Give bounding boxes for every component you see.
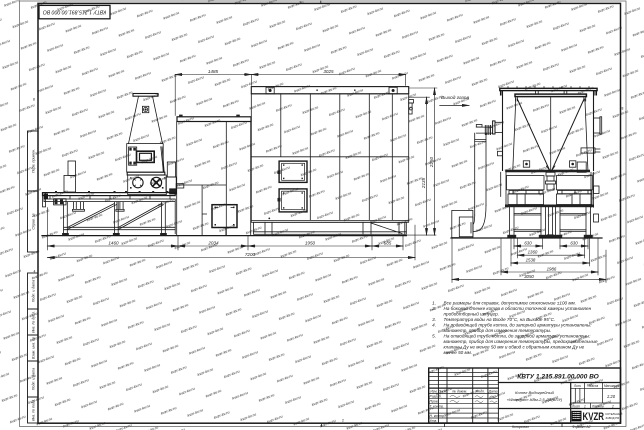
svg-text:манометр, прибор для измерения: манометр, прибор для измерения температу… — [444, 328, 552, 333]
svg-text:Перв. примен.: Перв. примен. — [32, 149, 36, 173]
svg-text:3050: 3050 — [524, 274, 534, 279]
svg-text:КОТЕЛЬНЫЙ: КОТЕЛЬНЫЙ — [606, 412, 623, 416]
svg-text:Копировал: Копировал — [512, 425, 529, 429]
svg-text:Разраб.: Разраб. — [430, 394, 442, 398]
svg-text:2135: 2135 — [421, 177, 426, 189]
svg-text:1460: 1460 — [108, 240, 119, 245]
svg-text:5.: 5. — [432, 334, 436, 339]
svg-text:Листов: Листов — [591, 404, 604, 408]
svg-text:На боковой стенке котла в обла: На боковой стенке котла в области топочн… — [444, 305, 592, 311]
svg-text:На подводящей трубе котла, до: На подводящей трубе котла, до запорной а… — [444, 322, 593, 328]
svg-text:KVZR: KVZR — [583, 411, 605, 423]
svg-text:8: 8 — [622, 107, 624, 111]
svg-text:1950: 1950 — [305, 240, 316, 245]
svg-text:2034: 2034 — [207, 240, 219, 245]
svg-text:клапаны Ду не менее 50 мм и об: клапаны Ду не менее 50 мм и обвод с обра… — [444, 345, 585, 350]
svg-text:ЗАВОД РФ: ЗАВОД РФ — [606, 416, 620, 420]
svg-text:1: 1 — [584, 404, 586, 408]
svg-text:Котел Водогрейный: Котел Водогрейный — [515, 390, 554, 395]
svg-text:Подп. и дата: Подп. и дата — [32, 368, 36, 391]
svg-text:Инв. № подл.: Инв. № подл. — [32, 399, 36, 421]
svg-text:1485: 1485 — [208, 69, 219, 74]
svg-text:КВТУ 1.215.891.00.000 ВО: КВТУ 1.215.891.00.000 ВО — [517, 374, 599, 381]
svg-text:КВТУ 1.215.891.00.000 ВО: КВТУ 1.215.891.00.000 ВО — [43, 8, 106, 14]
svg-text:Утв.: Утв. — [430, 419, 438, 423]
svg-text:Выход газов: Выход газов — [441, 95, 469, 101]
svg-text:1360: 1360 — [528, 250, 538, 255]
svg-text:4.: 4. — [432, 323, 436, 328]
svg-text:2: 2 — [342, 419, 344, 423]
svg-text:Подп. и дата: Подп. и дата — [32, 280, 36, 303]
svg-text:Изм: Изм — [430, 389, 437, 393]
svg-text:Температура воды на Входе 70°С: Температура воды на Входе 70°С, на Выход… — [444, 317, 556, 322]
svg-text:1986: 1986 — [547, 266, 557, 271]
svg-text:пробоотборный штуцер.: пробоотборный штуцер. — [444, 311, 499, 317]
svg-text:1.: 1. — [432, 301, 436, 306]
svg-text:Взам. инв. №: Взам. инв. № — [32, 337, 36, 359]
svg-text:Т. контр.: Т. контр. — [430, 404, 445, 408]
svg-text:2250: 2250 — [429, 156, 434, 168]
svg-text:Лист: Лист — [571, 404, 581, 408]
svg-text:3025: 3025 — [323, 69, 334, 74]
svg-text:Масса: Масса — [589, 384, 599, 388]
svg-text:Пров.: Пров. — [430, 399, 439, 403]
svg-text:630: 630 — [570, 240, 578, 245]
svg-text:Н. контр.: Н. контр. — [430, 414, 445, 418]
svg-text:Инв. № дубл.: Инв. № дубл. — [32, 311, 36, 333]
svg-text:7200: 7200 — [245, 252, 256, 257]
svg-text:3.: 3. — [432, 317, 436, 322]
svg-text:Все размеры для справок, допус: Все размеры для справок, допустимое откл… — [444, 301, 576, 306]
svg-text:Формат А2: Формат А2 — [572, 425, 591, 429]
svg-text:2: 2 — [611, 404, 614, 408]
svg-text:2: 2 — [299, 0, 301, 4]
svg-text:1538: 1538 — [526, 257, 536, 262]
svg-text:менее 50 мм.: менее 50 мм. — [444, 350, 473, 355]
svg-text:Лит.: Лит. — [573, 384, 582, 388]
svg-text:Справ. №: Справ. № — [32, 213, 36, 229]
svg-text:манометр, прибор для измерения: манометр, прибор для измерения температу… — [444, 339, 598, 344]
svg-text:8: 8 — [33, 98, 35, 102]
svg-text:1:20: 1:20 — [607, 394, 616, 399]
svg-text:Масштаб: Масштаб — [604, 384, 619, 388]
svg-text:Лист: Лист — [437, 389, 447, 393]
svg-text:Подп.: Подп. — [476, 389, 485, 393]
svg-text:На отводящей трубе котла, до з: На отводящей трубе котла, до запорной ар… — [444, 333, 592, 339]
svg-text:630: 630 — [524, 240, 532, 245]
svg-text:Дата: Дата — [488, 389, 498, 393]
svg-text:«Watergart»-КВм-2,5-ДВ(ВПУ): «Watergart»-КВм-2,5-ДВ(ВПУ) — [507, 397, 563, 402]
svg-text:685: 685 — [384, 240, 392, 245]
svg-text:2.: 2. — [431, 306, 436, 311]
svg-text:№ докум.: № докум. — [452, 389, 467, 393]
